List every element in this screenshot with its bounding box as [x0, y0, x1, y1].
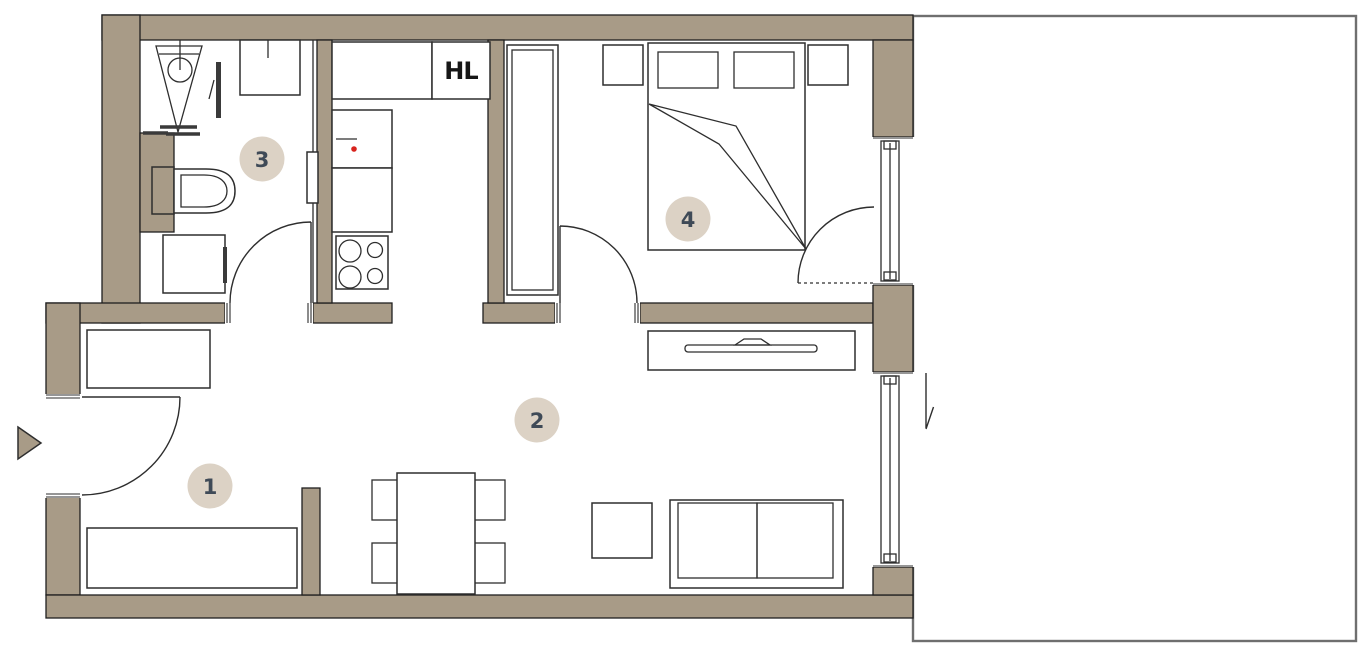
balcony-door-swing — [798, 207, 874, 283]
room-number: 3 — [255, 148, 270, 172]
wall-top — [102, 15, 913, 40]
kitchen-counter-top — [332, 42, 432, 99]
room-badge-2: 2 — [515, 398, 560, 443]
dining-set — [372, 473, 505, 594]
dining-table — [397, 473, 475, 594]
shower-tray-marks — [143, 127, 200, 134]
tv-sideboard — [648, 331, 855, 370]
bedroom — [507, 43, 848, 295]
living-room — [372, 331, 855, 594]
room-number: 2 — [530, 409, 545, 433]
sofa — [670, 500, 843, 588]
shower — [143, 40, 221, 134]
balcony — [913, 16, 1356, 641]
wall-right-lower — [873, 567, 913, 595]
wall-right-upper — [873, 40, 913, 137]
kitchen: HL — [332, 42, 490, 289]
kitchen-red-dot — [351, 146, 357, 152]
wardrobe — [507, 45, 558, 295]
entrance-opening — [45, 394, 81, 498]
bathroom-door-swing — [230, 222, 311, 303]
room-number: 1 — [203, 475, 218, 499]
hall-wardrobe — [87, 330, 210, 388]
wall-bottom — [46, 595, 913, 618]
bathroom-radiator — [307, 152, 318, 203]
balcony-outline — [913, 16, 1356, 641]
wall-left-lower-2 — [46, 497, 80, 595]
bedroom-opening — [555, 302, 640, 324]
room-badge-1: 1 — [188, 464, 233, 509]
nightstand-right — [808, 45, 848, 85]
kitchen-base-unit — [332, 168, 392, 232]
entrance-arrow-icon — [18, 427, 41, 459]
washbasin — [240, 40, 300, 95]
bathroom-opening — [225, 302, 313, 324]
wall-left-lower-1 — [46, 303, 80, 395]
room-badge-4: 4 — [666, 197, 711, 242]
entrance-door-swing — [82, 397, 180, 495]
floor-plan-drawing: HL — [0, 0, 1368, 652]
shower-door-handle — [209, 80, 214, 99]
hall-sideboard — [87, 528, 297, 588]
shower-glass-panel — [216, 62, 221, 118]
bedroom-door-swing — [560, 226, 637, 303]
toilet — [152, 167, 235, 214]
wall-mid-c — [483, 303, 555, 323]
wall-left-upper — [102, 15, 140, 323]
room-badge-3: 3 — [240, 137, 285, 182]
living-window-opening — [871, 372, 915, 567]
nightstand-left — [603, 45, 643, 85]
wall-right-middle — [873, 285, 913, 372]
room-number: 4 — [681, 208, 696, 232]
floor-plan: HL — [0, 0, 1368, 652]
wall-mid-d — [640, 303, 873, 323]
shaft-label: HL — [444, 57, 478, 85]
stove — [336, 236, 388, 289]
wall-bath-kitchen — [317, 40, 332, 303]
bathroom — [143, 40, 318, 303]
coffee-table — [592, 503, 652, 558]
wall-stub-hall — [302, 488, 320, 595]
hallway — [87, 330, 297, 588]
bedroom-window-opening — [871, 137, 915, 285]
toilet-cistern — [152, 167, 174, 214]
wall-mid-b — [313, 303, 392, 323]
washing-machine — [163, 235, 227, 293]
